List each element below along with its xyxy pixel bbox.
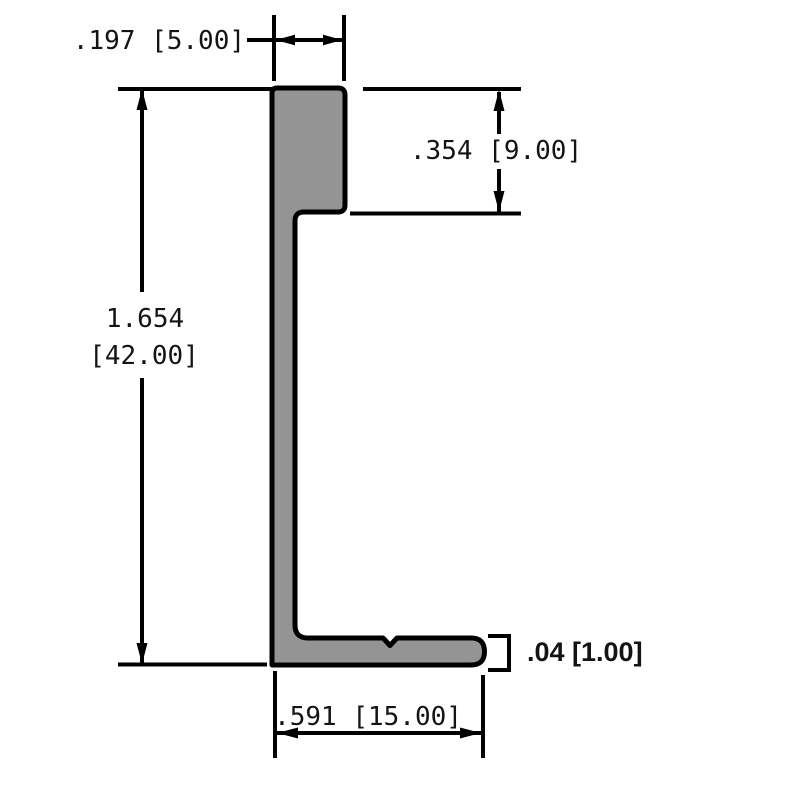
top-width-arrowhead-right [323,35,342,46]
profile-cross-section-outline [272,88,485,665]
profile-shape [272,88,485,665]
upper-step-height-label: .354 [9.00] [410,136,582,166]
drawing-canvas: .197 [5.00] .354 [9.00] 1.654 [42.00] .0… [0,0,800,800]
dimension-overall-height: 1.654 [42.00] [89,89,199,664]
height-arrowhead-down [137,643,148,664]
flange-thickness-bracket [488,636,509,670]
dimension-bottom-width: .591 [15.00] [274,671,483,758]
dimension-top-width: .197 [5.00] [73,15,344,81]
bottom-width-arrowhead-right [460,728,481,739]
bottom-width-label: .591 [15.00] [274,702,462,732]
height-arrowhead-up [137,89,148,110]
dimension-upper-step-height: .354 [9.00] [410,90,582,212]
step-arrowhead-down [494,191,505,212]
top-width-arrowhead-left [276,35,295,46]
top-width-label: .197 [5.00] [73,26,245,56]
overall-height-inches-label: 1.654 [106,304,184,334]
step-arrowhead-up [494,90,505,111]
flange-thickness-label: .04 [1.00] [527,637,643,667]
profile-drawing: .197 [5.00] .354 [9.00] 1.654 [42.00] .0… [0,0,800,800]
dimension-flange-thickness: .04 [1.00] [488,636,643,670]
overall-height-mm-label: [42.00] [89,341,199,371]
